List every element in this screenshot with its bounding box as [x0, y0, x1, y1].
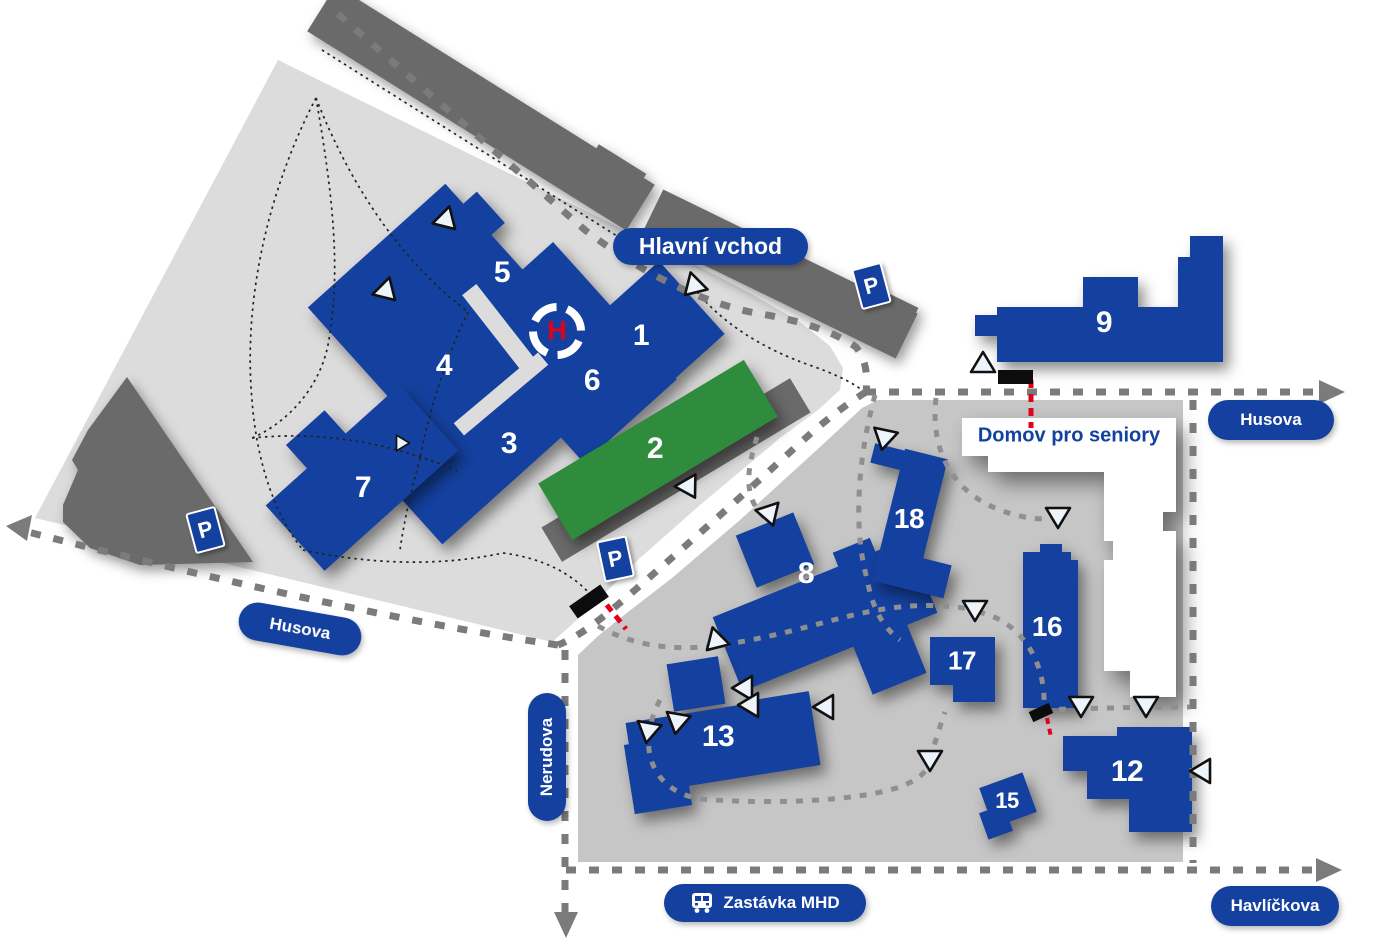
street-label-nerudova: Nerudova [528, 693, 566, 821]
road-arrow-south [554, 912, 578, 938]
road-arrow-east [1319, 380, 1345, 404]
road-arrow-southeast [1316, 858, 1342, 882]
building-9-label: 9 [1096, 306, 1112, 340]
building-17-label: 17 [948, 646, 976, 677]
entrance-arrow-icon [660, 709, 694, 740]
building-15-label: 15 [995, 788, 1018, 814]
building-16-label: 16 [1032, 611, 1062, 643]
building-5-label: 5 [494, 256, 510, 290]
building-13-label: 13 [702, 720, 734, 754]
building-3-label: 3 [501, 427, 517, 461]
internal-paths [598, 395, 1190, 802]
street-label-havlickova: Havlíčkova [1211, 886, 1339, 926]
hospital-campus-map: 1 2 3 4 5 6 7 8 9 12 13 15 16 17 18 H P … [0, 0, 1400, 951]
building-7-label: 7 [355, 471, 371, 505]
helipad-letter: H [547, 316, 567, 347]
building-18-label: 18 [894, 503, 924, 535]
bus-stop-label: Zastávka MHD [664, 884, 866, 922]
building-2-label: 2 [647, 432, 663, 466]
entrance-arrow-icon [1187, 756, 1213, 786]
building-12-label: 12 [1111, 755, 1143, 789]
entrance-arrow-icon [1043, 505, 1073, 531]
entrance-arrow-icon [1066, 694, 1096, 720]
building-8-label: 8 [798, 557, 814, 591]
parking-letter: P [195, 516, 216, 545]
parking-letter: P [861, 272, 882, 301]
gate-barrier-north [998, 370, 1033, 384]
entrance-arrow-icon [1131, 694, 1161, 720]
entrance-arrow-icon [395, 433, 412, 453]
senior-home-label: Domov pro seniory [978, 425, 1160, 448]
entrance-arrow-icon [915, 748, 945, 774]
bus-icon [690, 891, 714, 915]
street-centerlines [6, 14, 1345, 938]
entrance-arrow-icon [968, 349, 998, 375]
entrance-arrow-icon [960, 598, 990, 624]
building-1-label: 1 [633, 319, 649, 353]
parking-letter: P [606, 545, 626, 573]
building-4-label: 4 [436, 349, 452, 383]
entrance-arrow-icon [810, 692, 836, 722]
street-label-husova-east: Husova [1208, 400, 1334, 440]
road-arrow-west [6, 515, 32, 541]
entrance-arrow-icon [735, 690, 761, 720]
main-entrance-label: Hlavní vchod [613, 228, 808, 265]
